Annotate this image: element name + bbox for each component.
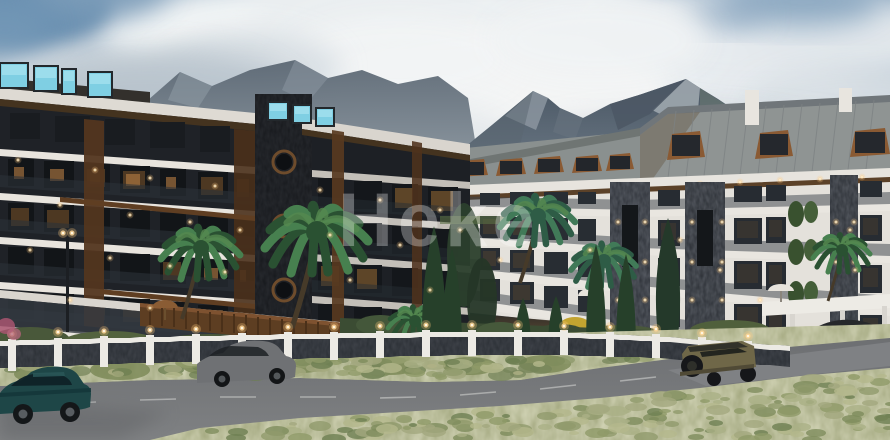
- svg-text:Heke: Heke: [338, 178, 540, 263]
